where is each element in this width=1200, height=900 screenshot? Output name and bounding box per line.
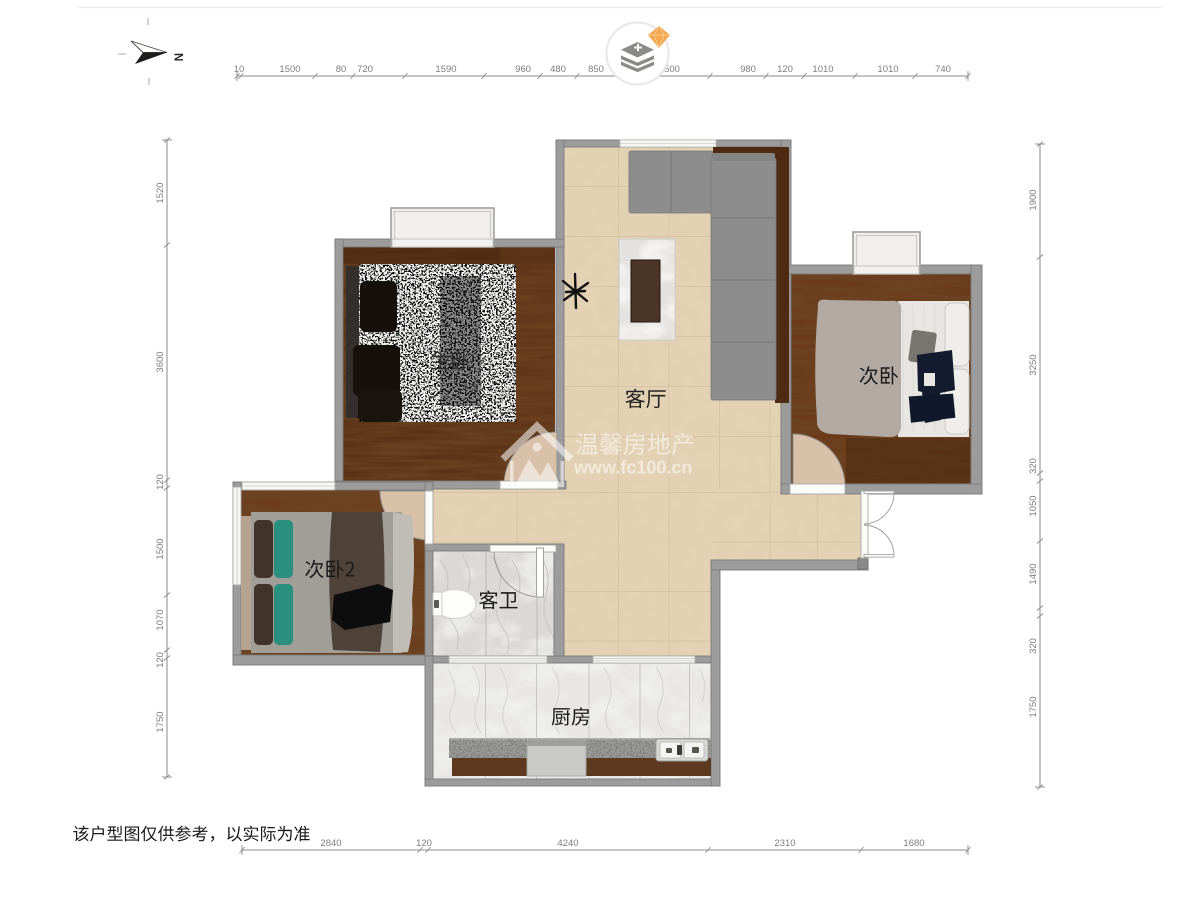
svg-text:1050: 1050 (1028, 495, 1039, 516)
svg-text:1490: 1490 (1028, 563, 1039, 584)
svg-text:1680: 1680 (903, 838, 924, 849)
svg-text:1010: 1010 (877, 64, 898, 75)
svg-text:10: 10 (234, 64, 245, 75)
svg-text:2840: 2840 (320, 838, 341, 849)
svg-text:120: 120 (155, 652, 166, 668)
svg-text:320: 320 (1028, 458, 1039, 474)
svg-text:1520: 1520 (155, 182, 166, 203)
svg-text:1750: 1750 (155, 711, 166, 732)
svg-text:120: 120 (777, 64, 793, 75)
svg-text:1010: 1010 (812, 64, 833, 75)
svg-text:2310: 2310 (774, 838, 795, 849)
svg-text:N: N (172, 53, 184, 61)
svg-text:320: 320 (1028, 638, 1039, 654)
svg-text:120: 120 (416, 838, 432, 849)
svg-text:120: 120 (155, 474, 166, 490)
svg-text:1900: 1900 (1028, 189, 1039, 210)
svg-text:740: 740 (935, 64, 951, 75)
svg-text:3250: 3250 (1028, 354, 1039, 375)
svg-text:www.fc100.cn: www.fc100.cn (573, 458, 692, 478)
svg-text:1500: 1500 (279, 64, 300, 75)
svg-text:1590: 1590 (435, 64, 456, 75)
svg-text:960: 960 (515, 64, 531, 75)
svg-text:4240: 4240 (557, 838, 578, 849)
svg-text:80: 80 (336, 64, 347, 75)
svg-text:3600: 3600 (155, 351, 166, 372)
svg-text:480: 480 (550, 64, 566, 75)
svg-text:850: 850 (588, 64, 604, 75)
svg-text:1500: 1500 (155, 538, 166, 559)
svg-text:720: 720 (357, 64, 373, 75)
svg-text:1750: 1750 (1028, 696, 1039, 717)
svg-text:1070: 1070 (155, 609, 166, 630)
svg-text:980: 980 (740, 64, 756, 75)
